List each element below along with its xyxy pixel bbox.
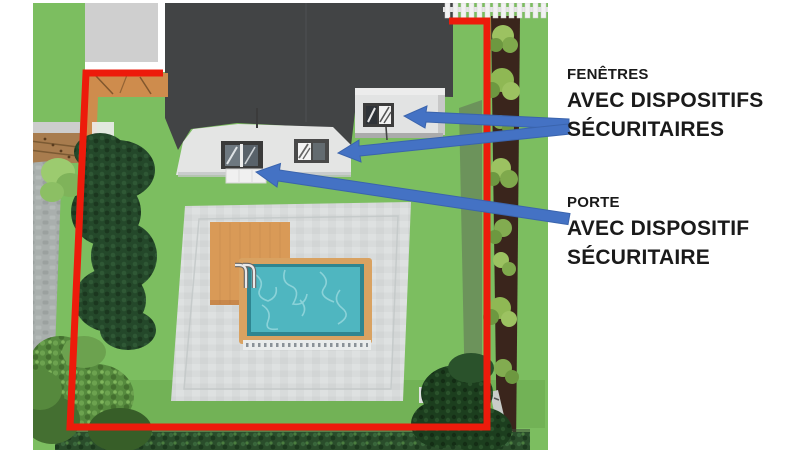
door-label-line2: AVEC DISPOSITIF <box>567 214 749 243</box>
door-label-line1: PORTE <box>567 191 749 214</box>
side-walkway <box>28 122 80 133</box>
top-margin <box>0 0 800 3</box>
door-label-line3: SÉCURITAIRE <box>567 243 749 272</box>
driveway <box>85 3 158 65</box>
windows-label: FENÊTRES AVEC DISPOSITIFS SÉCURITAIRES <box>567 63 764 144</box>
windows-label-line3: SÉCURITAIRES <box>567 115 764 144</box>
pool-safety-slide: FENÊTRES AVEC DISPOSITIFS SÉCURITAIRES P… <box>0 0 800 450</box>
house-window-left <box>221 141 263 169</box>
left-margin <box>0 0 33 450</box>
annex-base-shadow <box>355 133 443 138</box>
house-window-right <box>294 139 329 163</box>
pool <box>235 258 372 350</box>
downspout <box>256 108 258 128</box>
windows-label-line2: AVEC DISPOSITIFS <box>567 86 764 115</box>
door-label: PORTE AVEC DISPOSITIF SÉCURITAIRE <box>567 191 749 272</box>
windows-label-line1: FENÊTRES <box>567 63 764 86</box>
annex-roof-edge <box>355 88 445 96</box>
